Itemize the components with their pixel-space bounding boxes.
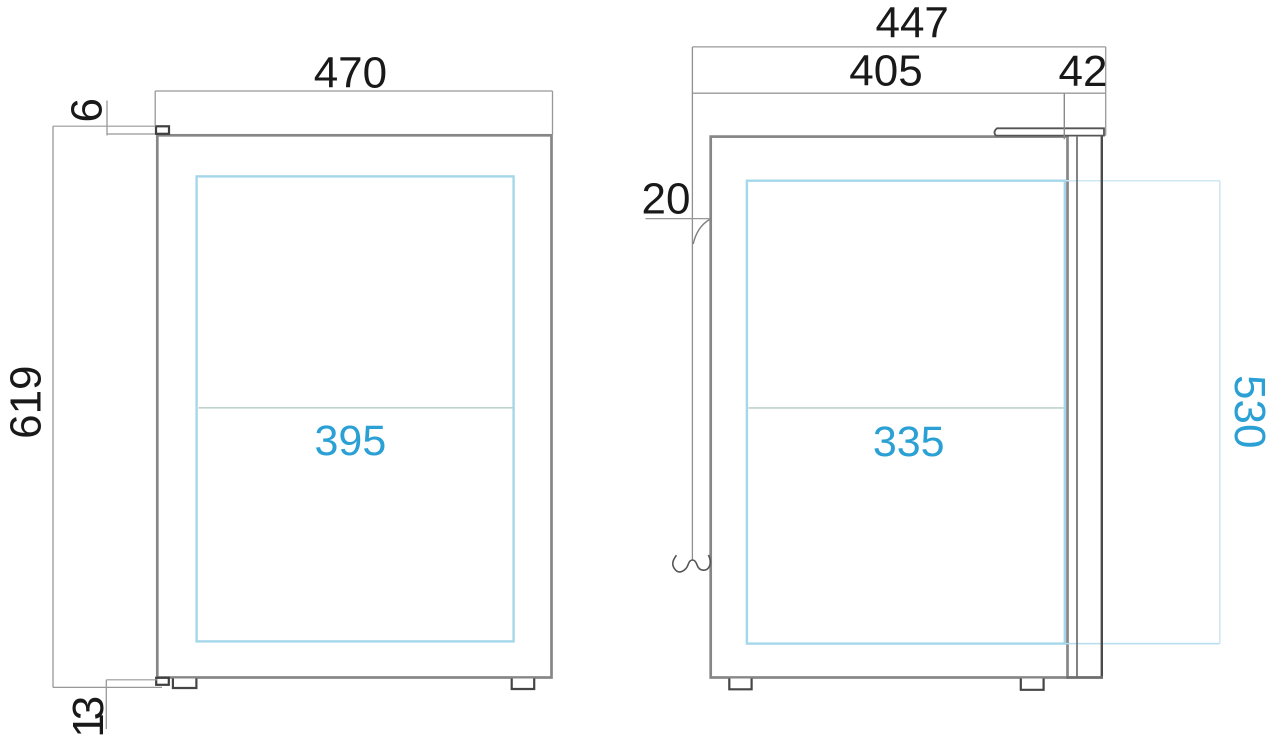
svg-text:395: 395 xyxy=(315,417,387,465)
svg-text:530: 530 xyxy=(1225,375,1274,448)
svg-text:470: 470 xyxy=(314,49,387,98)
svg-text:447: 447 xyxy=(875,0,948,48)
svg-text:3: 3 xyxy=(64,696,113,720)
svg-text:619: 619 xyxy=(2,365,51,438)
svg-text:20: 20 xyxy=(642,175,691,224)
svg-text:6: 6 xyxy=(63,98,112,122)
svg-text:335: 335 xyxy=(873,418,945,466)
svg-text:42: 42 xyxy=(1059,47,1108,96)
svg-text:405: 405 xyxy=(849,47,922,96)
